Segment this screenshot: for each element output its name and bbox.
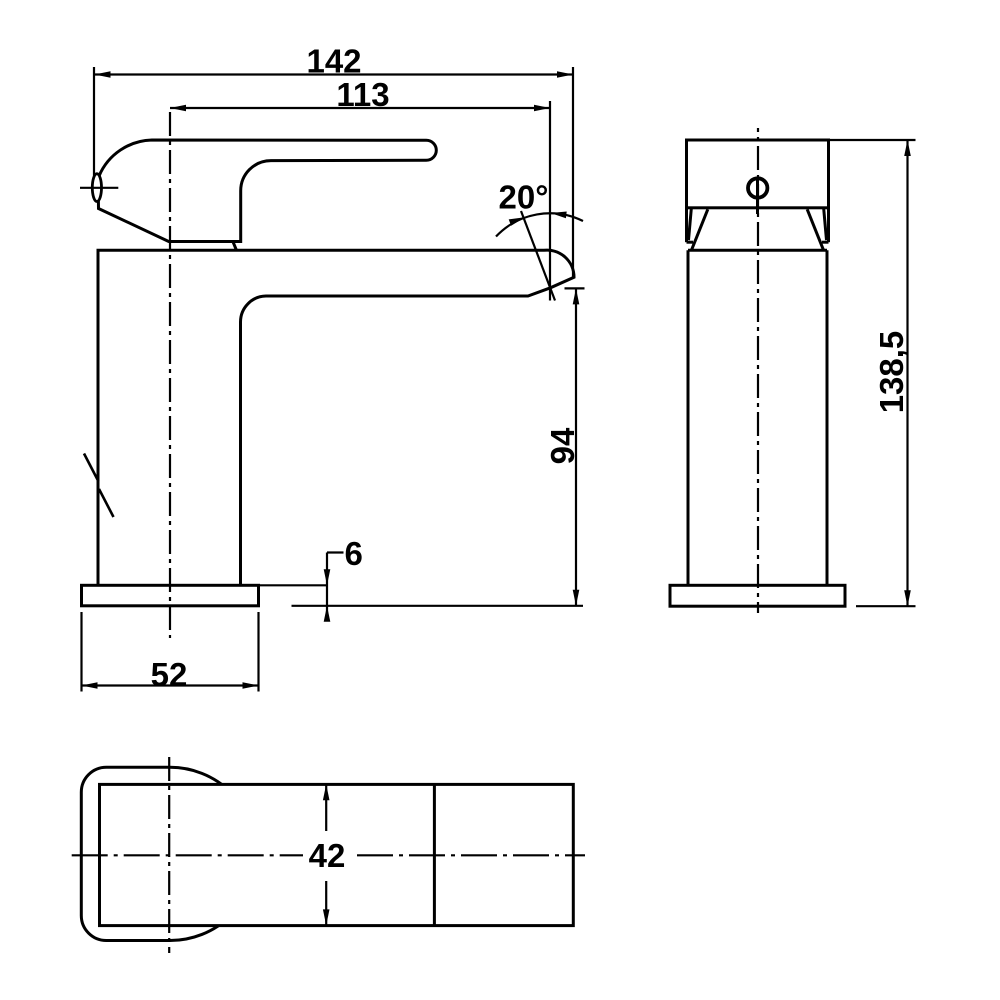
svg-text:52: 52 bbox=[151, 656, 188, 693]
svg-text:113: 113 bbox=[336, 76, 389, 113]
svg-text:94: 94 bbox=[544, 427, 581, 464]
svg-text:6: 6 bbox=[345, 535, 363, 572]
svg-text:142: 142 bbox=[306, 43, 361, 80]
svg-text:42: 42 bbox=[309, 837, 346, 874]
svg-text:138,5: 138,5 bbox=[873, 331, 910, 414]
svg-text:20°: 20° bbox=[499, 179, 549, 216]
